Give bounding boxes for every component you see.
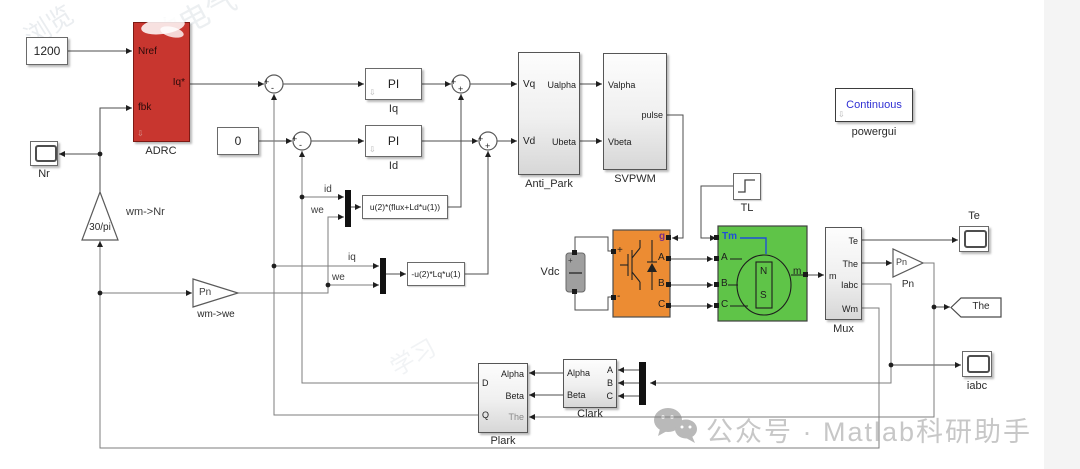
sum-sign: + [485,142,490,150]
gain-30pi-label: wm->Nr [126,206,165,218]
pmsm-magnet-s: S [760,290,767,302]
port-vd: Vd [523,136,535,148]
pmsm-port-tm: Tm [722,231,737,243]
mask-badge-icon: ⇩ [137,130,144,138]
mux-port-te: Te [848,235,858,247]
powergui-label: powergui [835,126,913,138]
clark-label: Clark [563,408,617,420]
pmsm-port-b: B [721,278,728,290]
step-tl-label: TL [733,202,761,214]
scope-screen [35,145,57,162]
adrc-label: ADRC [131,145,191,157]
mask-badge-icon: ⇩ [838,111,845,119]
mux-port-wm: Wm [842,303,858,315]
sum-sign: + [458,85,463,93]
adrc-port-nref: Nref [138,46,157,58]
fcn-d-decouple[interactable]: -u(2)*Lq*u(1) [407,262,465,286]
inverter-port-plus: + [617,245,623,257]
plark-label: Plark [478,435,528,447]
mux-id-we-bar[interactable] [345,190,351,227]
gain-pn-label: Pn [893,279,923,290]
step-tl-block[interactable] [733,173,761,200]
port-valpha: Valpha [608,79,635,91]
port-alpha: Alpha [501,368,524,380]
fcn-expression: u(2)*(flux+Ld*u(1)) [363,196,447,218]
adrc-block[interactable]: Nref fbk Iq* ⇩ [133,22,190,142]
port-ualpha: Ualpha [547,79,576,91]
vdc-label: Vdc [537,266,563,278]
mux-block[interactable]: m Te The Iabc Wm [825,227,862,320]
pi-id-block[interactable]: PI ⇩ [365,125,422,157]
signal-label-we: we [311,205,324,216]
pi-iq-block[interactable]: PI ⇩ [365,68,422,100]
port-q: Q [482,409,489,421]
port-pulse: pulse [641,109,663,121]
sum-sign: + [451,78,456,86]
fcn-q-decouple[interactable]: u(2)*(flux+Ld*u(1)) [362,195,448,219]
pi-id-label: Id [365,160,422,172]
mux-iq-we-bar[interactable] [380,258,386,294]
vdc-plus-sign: + [568,257,573,265]
constant-value: 0 [218,128,258,154]
inverter-port-a: A [658,252,665,264]
port-beta: Beta [567,389,586,401]
powergui-block[interactable]: Continuous ⇩ [835,88,913,122]
port-b: B [607,377,613,389]
gain-we-value: Pn [199,287,211,298]
wires-forward [59,51,961,396]
anti-park-label: Anti_Park [514,178,584,190]
sum-sign: - [299,141,302,149]
port-vq: Vq [523,79,535,91]
pmsm-port-m: m [793,266,801,278]
scope-nr[interactable] [30,141,58,166]
anti-park-block[interactable]: Vq Vd Ualpha Ubeta [518,52,580,175]
goto-the-text: The [961,301,1001,312]
adrc-port-iqref: Iq* [173,77,185,89]
constant-speed-ref[interactable]: 1200 [26,37,68,65]
port-a: A [607,364,613,376]
port-vbeta: Vbeta [608,136,632,148]
svpwm-block[interactable]: Valpha Vbeta pulse [603,53,667,170]
inverter-port-b: B [658,278,665,290]
scope-iabc[interactable] [962,351,992,377]
constant-value: 1200 [27,38,67,64]
signal-label-we: we [332,272,345,283]
svpwm-label: SVPWM [603,173,667,185]
powergui-mode: Continuous [836,89,912,121]
pmsm-port-c: C [721,299,728,311]
inverter-port-c: C [658,299,665,311]
port-beta: Beta [505,390,524,402]
scope-te-label: Te [959,210,989,222]
port-ubeta: Ubeta [552,136,576,148]
simulink-model-canvas: 浏览 的电气 学习 公众号 · Matlab科研助手 [0,0,1080,469]
clark-block[interactable]: Alpha Beta A B C [563,359,617,408]
mux-port-m: m [829,270,837,282]
scope-nr-label: Nr [30,168,58,180]
signal-label-id: id [324,184,332,195]
sum-sign: - [271,84,274,92]
pi-iq-label: Iq [365,103,422,115]
sum-sign: + [292,135,297,143]
gain-we-label: wm->we [191,309,241,320]
mux-label: Mux [825,323,862,335]
plark-block[interactable]: D Q Alpha Beta The [478,363,528,433]
pmsm-magnet-n: N [760,266,767,278]
constant-id-ref[interactable]: 0 [217,127,259,155]
gain-pn-value: Pn [896,257,907,267]
pmsm-port-a: A [721,252,728,264]
mux-port-the: The [842,258,858,270]
mask-badge-icon: ⇩ [369,146,376,154]
scope-screen [964,230,987,248]
inverter-port-g: g [659,231,665,243]
port-d: D [482,377,489,389]
step-icon [734,174,760,199]
signal-label-iq: iq [348,252,356,263]
mux-port-iabc: Iabc [841,279,858,291]
demux-abc-bar[interactable] [639,362,646,405]
inverter-port-minus: - [617,291,620,303]
scope-te[interactable] [959,226,989,252]
mask-badge-icon: ⇩ [369,89,376,97]
scope-screen [967,355,990,373]
port-the: The [508,411,524,423]
port-alpha: Alpha [567,367,590,379]
gain-30pi-value: 30/pi [84,222,116,233]
sum-sign: + [264,78,269,86]
fcn-expression: -u(2)*Lq*u(1) [408,263,464,285]
adrc-port-fbk: fbk [138,102,151,114]
sum-sign: + [478,135,483,143]
scope-iabc-label: iabc [956,380,998,392]
port-c: C [607,390,614,402]
